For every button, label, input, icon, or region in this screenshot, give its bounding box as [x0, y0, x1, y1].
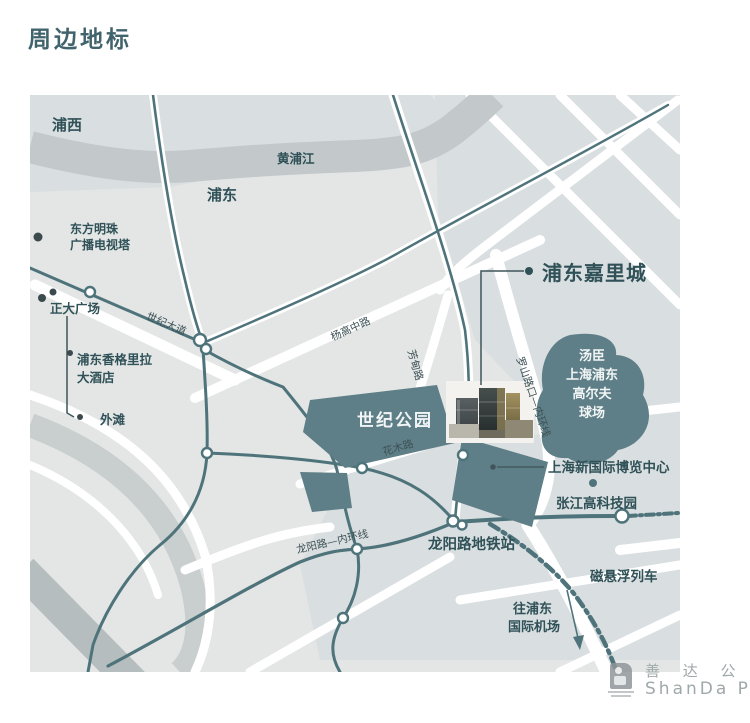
east-street-2: [620, 543, 680, 550]
shanda-logo-icon: [606, 663, 636, 697]
road-node: [338, 613, 348, 623]
kerry-callout-dot: [525, 267, 533, 275]
bund-label: 外滩: [99, 412, 126, 427]
road-node: [352, 544, 362, 554]
road-node: [202, 448, 212, 458]
longyang-station-label: 龙阳路地铁站: [427, 535, 515, 553]
shangrila-label-2: 大酒店: [77, 370, 115, 385]
zhengda-dot: [38, 294, 46, 302]
river-label: 黄浦江: [277, 151, 315, 166]
century-park-label: 世纪公园: [357, 410, 433, 431]
oriental-pearl-dot: [34, 233, 43, 242]
expo-label: 上海新国际博览中心: [548, 459, 670, 476]
golf-label-4: 球场: [579, 405, 605, 421]
watermark-chinese: 善 达 公 关: [645, 663, 750, 680]
region-label-pudong: 浦东: [207, 186, 237, 204]
road-node: [85, 287, 95, 297]
golf-label-2: 上海浦东: [566, 367, 618, 383]
zhengda-label: 正大广场: [50, 301, 100, 316]
station-node: [458, 521, 467, 530]
oriental-pearl-label-2: 广播电视塔: [70, 237, 131, 252]
kerry-towers-photo: [446, 381, 534, 443]
airport-label-1: 往浦东: [513, 601, 552, 617]
page-title: 周边地标: [28, 20, 132, 54]
maglev-label: 磁悬浮列车: [590, 568, 658, 585]
airport-label-2: 国际机场: [508, 619, 560, 635]
region-label-puxi: 浦西: [52, 116, 82, 134]
page: 周边地标: [0, 0, 750, 723]
watermark-text: 善 达 公 关 ShanDa PR: [645, 663, 750, 700]
road-node: [357, 463, 367, 473]
golf-label-3: 高尔夫: [572, 386, 612, 402]
zhangjiang-marker-dot: [589, 479, 597, 487]
zhengda-dot-2: [50, 289, 57, 296]
shangrila-dot: [67, 350, 73, 356]
shangrila-label-1: 浦东香格里拉: [77, 352, 153, 367]
kerry-label: 浦东嘉里城: [542, 261, 647, 285]
oriental-pearl-label-1: 东方明珠: [70, 221, 119, 236]
watermark: 善 达 公 关 ShanDa PR: [606, 663, 750, 700]
watermark-english: ShanDa PR: [645, 680, 750, 700]
junction-node: [201, 344, 211, 354]
road-node: [458, 450, 468, 460]
location-map: 浦西 浦东 黄浦江 东方明珠 广播电视塔 正大广场 浦东香格里拉 大酒店 外滩 …: [0, 0, 750, 723]
bund-dot: [77, 414, 83, 420]
zhangjiang-label: 张江高科技园: [556, 495, 637, 512]
golf-label-1: 汤臣: [579, 349, 605, 364]
expo-marker-dot: [490, 464, 496, 470]
